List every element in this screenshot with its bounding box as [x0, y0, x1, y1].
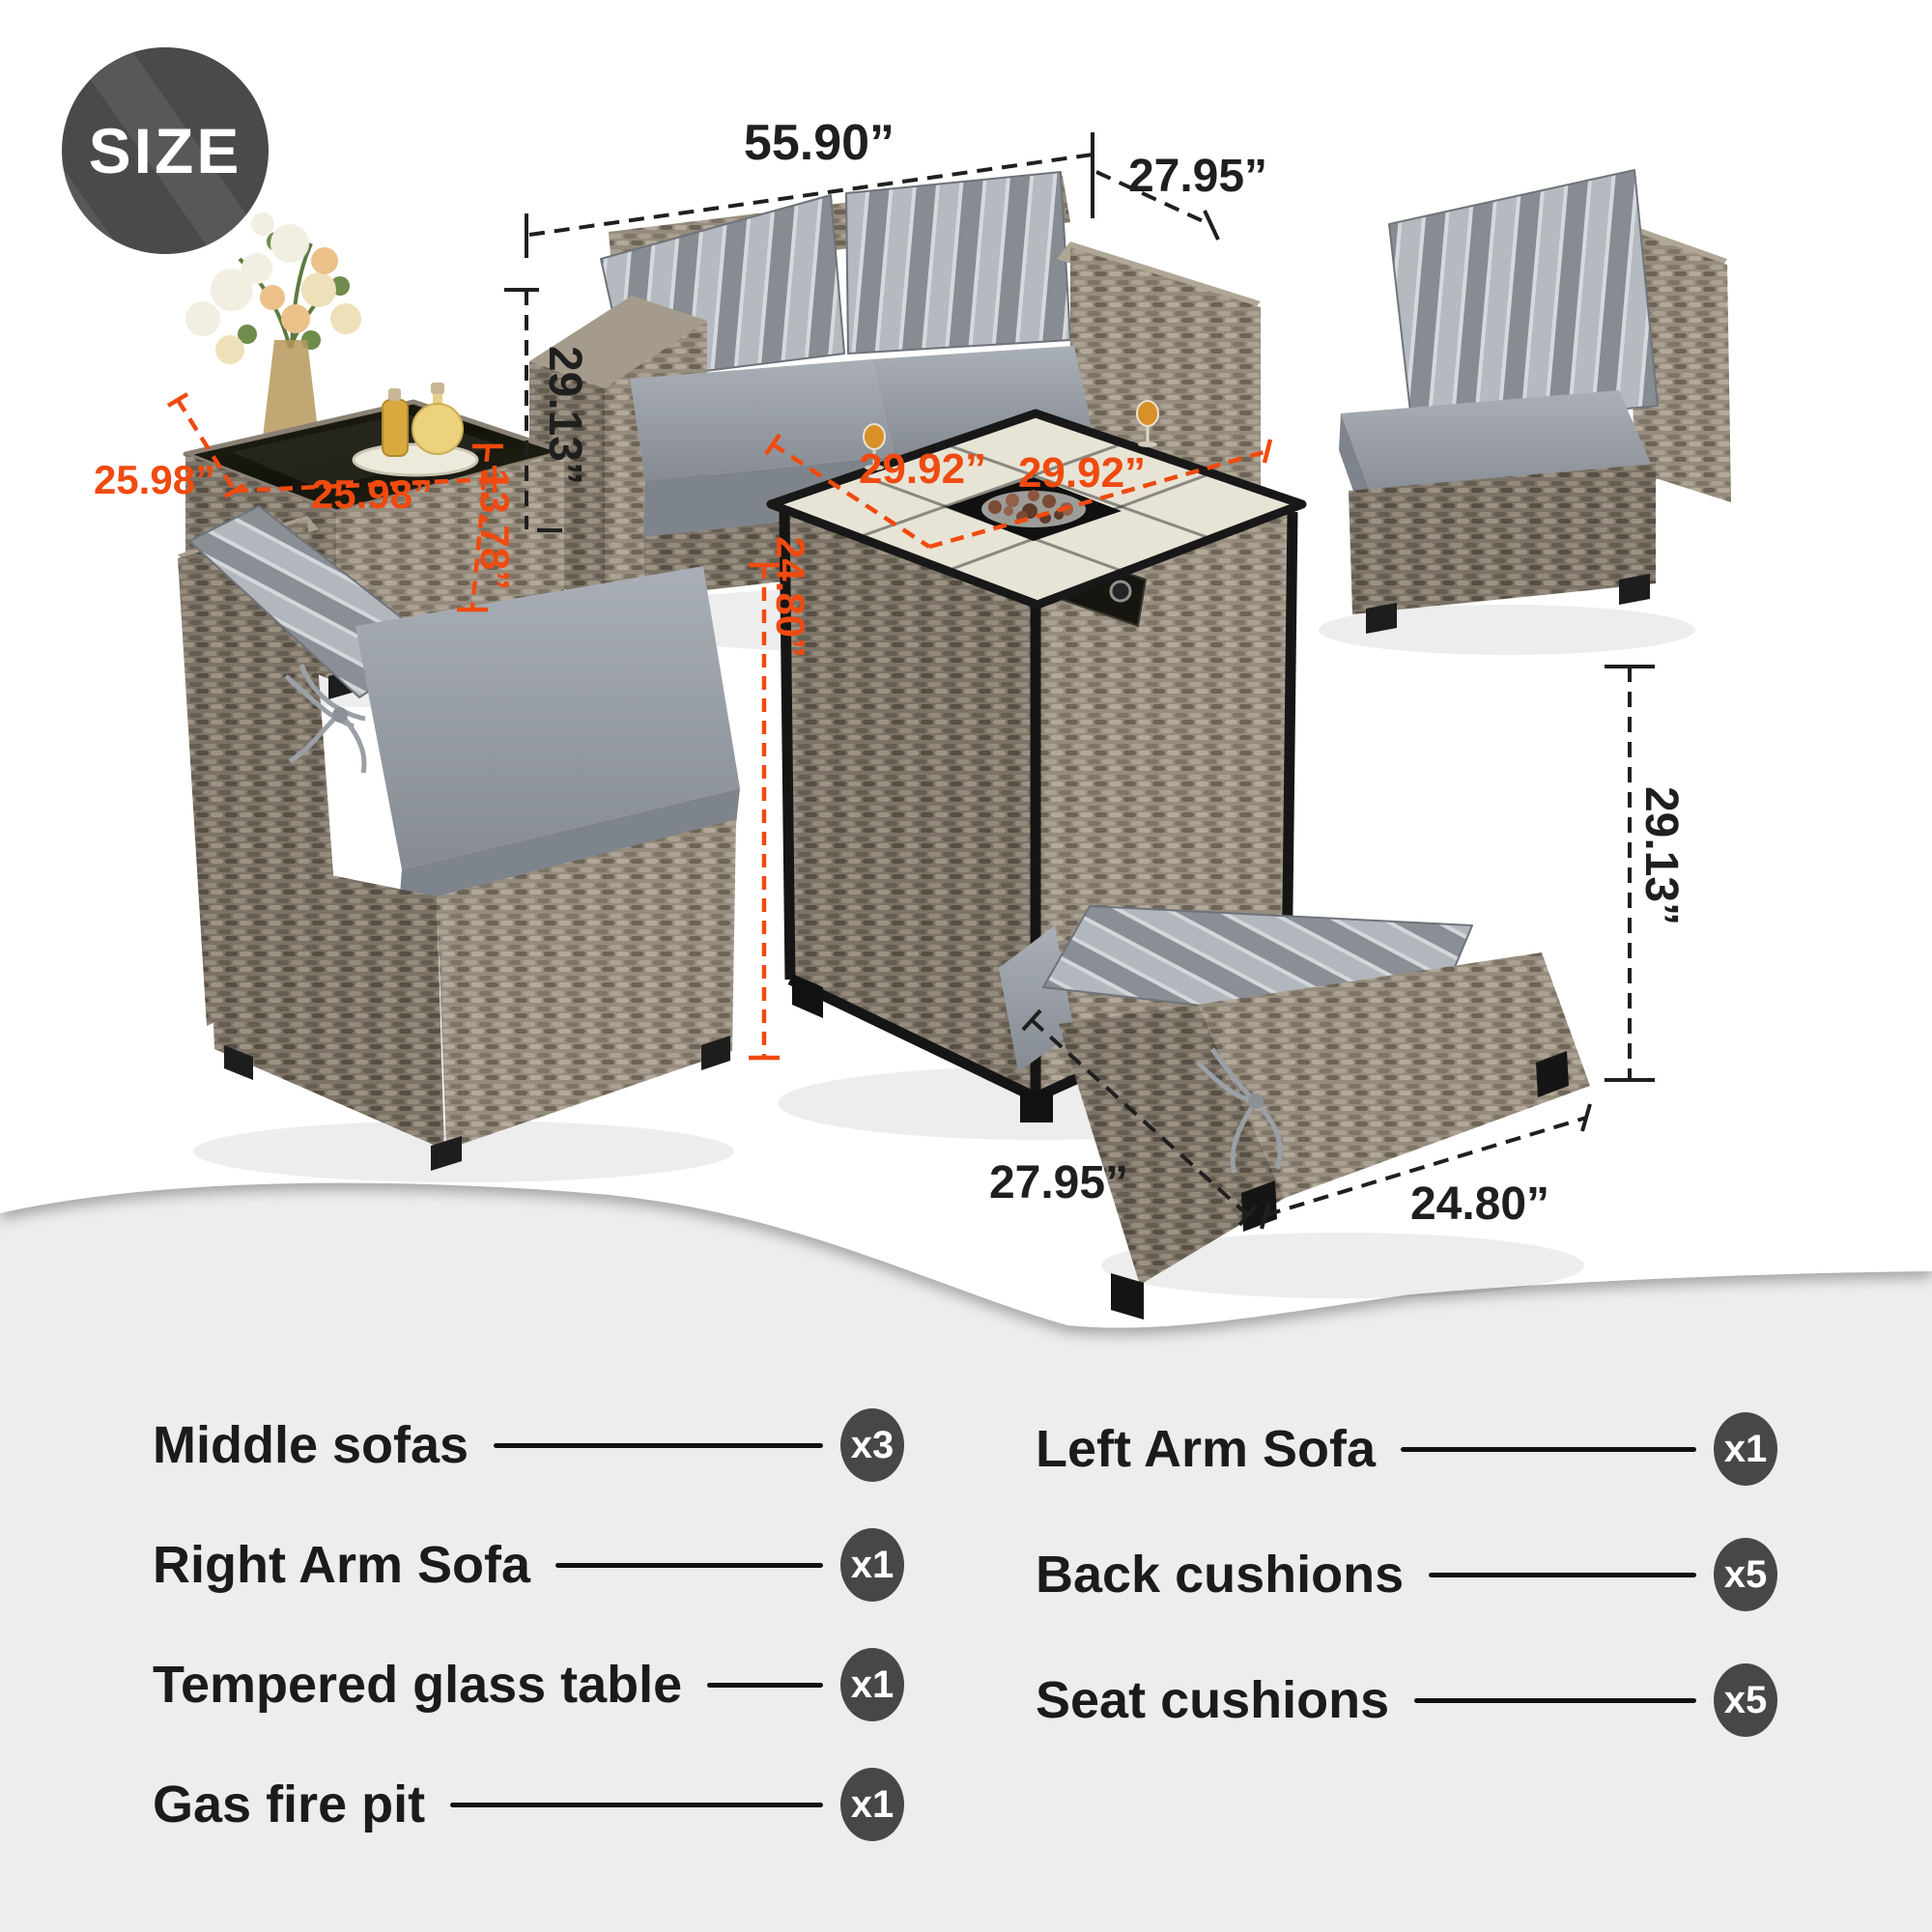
- leader-line: [494, 1443, 823, 1448]
- count-badge: x1: [840, 1648, 904, 1721]
- count-badge: x5: [1714, 1538, 1777, 1611]
- list-item: Tempered glass table x1: [153, 1644, 904, 1725]
- leader-line: [555, 1563, 823, 1568]
- list-item-label: Right Arm Sofa: [153, 1535, 530, 1595]
- dim-sofa-height: 29.13”: [541, 346, 587, 485]
- leader-line: [450, 1803, 823, 1807]
- list-item-label: Seat cushions: [1036, 1670, 1389, 1730]
- dim-fire-pit-width: 29.92”: [1018, 452, 1146, 495]
- leader-line: [1414, 1698, 1696, 1703]
- list-item: Back cushions x5: [1036, 1534, 1777, 1615]
- size-badge-label: SIZE: [89, 114, 242, 187]
- list-item-label: Left Arm Sofa: [1036, 1419, 1376, 1479]
- dim-side-table-height: 13.78”: [474, 469, 515, 590]
- count-badge: x5: [1714, 1663, 1777, 1737]
- dim-side-table-width: 25.98”: [311, 474, 433, 515]
- list-item-label: Gas fire pit: [153, 1775, 425, 1834]
- dim-fire-pit-height: 24.80”: [770, 536, 810, 658]
- dim-side-table-depth: 25.98”: [94, 460, 215, 500]
- furniture-scene: [0, 0, 1932, 1932]
- leader-line: [1401, 1447, 1696, 1452]
- count-badge: x1: [1714, 1412, 1777, 1486]
- count-badge: x3: [840, 1408, 904, 1482]
- list-item: Right Arm Sofa x1: [153, 1524, 904, 1605]
- dim-chair-width: 27.95”: [989, 1160, 1128, 1207]
- list-item: Gas fire pit x1: [153, 1764, 904, 1845]
- leader-line: [1429, 1573, 1696, 1577]
- list-item: Left Arm Sofa x1: [1036, 1408, 1777, 1490]
- list-item: Middle sofas x3: [153, 1405, 904, 1486]
- product-size-infographic: SIZE 55.90” 27.95” 29.13” 25.98” 25.98” …: [0, 0, 1932, 1932]
- list-item-label: Tempered glass table: [153, 1655, 682, 1715]
- dim-chair-depth: 24.80”: [1410, 1181, 1549, 1228]
- dim-sofa-depth: 27.95”: [1128, 154, 1267, 200]
- count-badge: x1: [840, 1528, 904, 1602]
- dim-chair-height: 29.13”: [1637, 786, 1684, 925]
- list-item-label: Middle sofas: [153, 1415, 469, 1475]
- dim-fire-pit-depth: 29.92”: [859, 448, 986, 491]
- list-item: Seat cushions x5: [1036, 1660, 1777, 1741]
- leader-line: [707, 1683, 823, 1688]
- count-badge: x1: [840, 1768, 904, 1841]
- size-badge: SIZE: [62, 47, 269, 254]
- dim-sofa-width: 55.90”: [744, 118, 895, 168]
- list-item-label: Back cushions: [1036, 1545, 1404, 1605]
